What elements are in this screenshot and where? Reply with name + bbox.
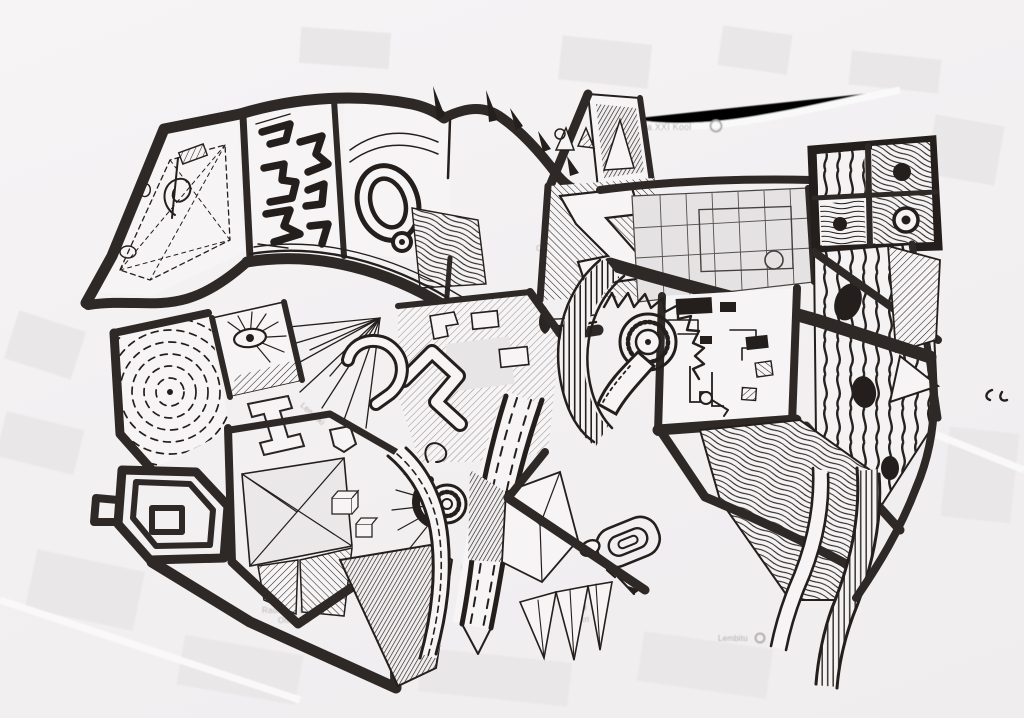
block-topright-waves: [812, 140, 938, 250]
block-graffiti: [246, 100, 342, 257]
ink-drawing-over-map: Tallinna XXI Kool radio Club Eesti Swiss…: [0, 0, 1024, 718]
bottom-centre-bands: [340, 448, 452, 686]
stray-scribble: [986, 390, 1007, 401]
map-pin-icon: [756, 634, 765, 643]
map-label-lembitu: Lembitu: [718, 634, 748, 643]
block-sketch-topleft: [98, 118, 244, 296]
block-eye-triangle: [212, 302, 302, 397]
scanned-artwork-page: Tallinna XXI Kool radio Club Eesti Swiss…: [0, 0, 1024, 718]
block-spiral-s: [344, 99, 486, 288]
ink-artwork: [86, 86, 1007, 688]
u-turn-road: [348, 341, 402, 404]
eye-iris: [246, 334, 254, 342]
antenna-line: [448, 120, 450, 178]
nested-squares-maze: [94, 470, 228, 560]
block-maze: [658, 288, 800, 432]
